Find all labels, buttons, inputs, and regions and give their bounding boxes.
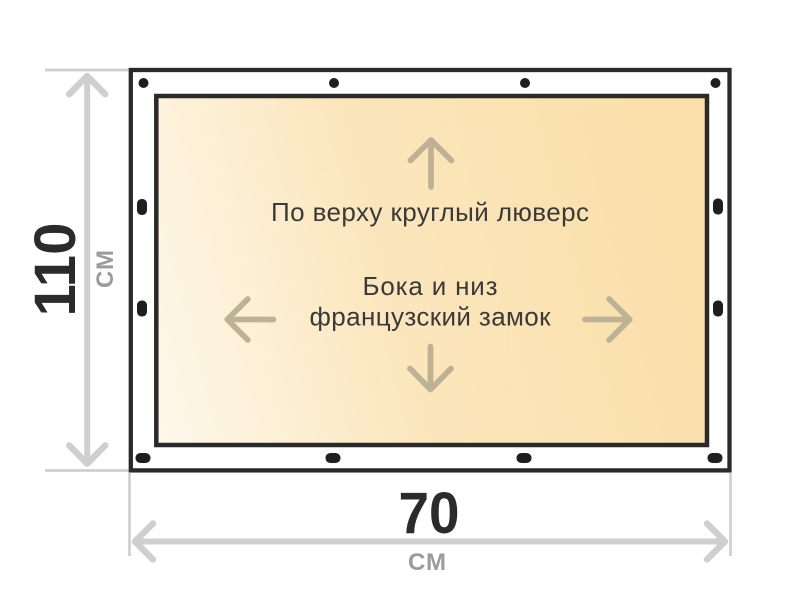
- svg-text:По верху круглый люверс: По верху круглый люверс: [271, 197, 589, 227]
- svg-text:СМ: СМ: [92, 249, 119, 288]
- svg-text:110: 110: [23, 223, 88, 317]
- svg-text:Бока и низ: Бока и низ: [363, 271, 498, 301]
- svg-text:французский замок: французский замок: [310, 302, 552, 332]
- svg-text:70: 70: [399, 481, 460, 546]
- svg-text:СМ: СМ: [408, 549, 447, 576]
